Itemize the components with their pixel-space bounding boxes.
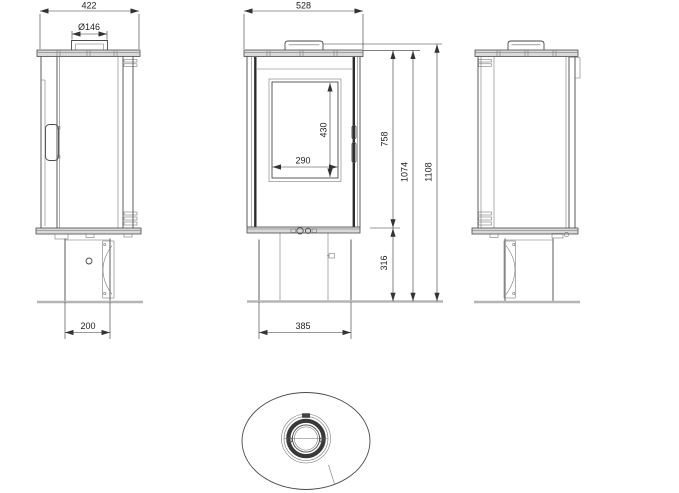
dim-glass-height-label: 430 [319,122,329,137]
dim-flue-diameter-label: Ø146 [78,22,100,32]
pedestal-right [504,239,553,302]
dim-flue-diameter: Ø146 [72,22,107,40]
top-plate-front [244,50,363,57]
pedestal-side [65,239,114,302]
dim-width-label: 528 [296,1,311,11]
dim-base-depth: 200 [65,302,110,339]
ellipse-seam-mark [329,465,335,484]
dim-total-height-label: 1108 [424,162,434,181]
bottom-plate-front [247,227,360,234]
dim-base-width: 385 [259,302,351,339]
dim-depth-label: 422 [81,1,96,11]
flue-tab [302,413,310,418]
top-view [242,393,370,490]
bottom-plate-side [36,228,141,239]
dim-width: 528 [244,1,363,50]
top-plate-side [37,50,140,57]
front-view: 528 430 [244,1,443,340]
vent-slats-bottom [124,212,137,225]
dim-base-depth-label: 200 [80,321,95,331]
dim-glass-height: 430 [319,83,331,177]
vent-slats-bottom [479,212,492,225]
right-side-view [472,41,580,302]
dim-height-to-top-label: 1074 [400,162,410,182]
dim-height-to-top: 1074 [400,51,414,302]
stove-body-front [247,57,360,228]
bottom-plate-right [472,228,578,238]
dim-total-height: 1108 [424,44,438,301]
technical-drawing-canvas: 422 Ø146 [0,0,679,493]
dim-base-height-label: 316 [379,255,389,270]
left-side-view: 422 Ø146 [36,1,143,340]
pedestal-hole [86,258,92,264]
dim-body-height: 758 [380,51,394,228]
stove-body-right [478,57,580,229]
stove-drawing-svg: 422 Ø146 [0,0,679,493]
dim-glass-width: 290 [273,156,338,168]
vent-slats-top [124,60,137,67]
stove-top-outline [242,393,370,490]
flue-collar-right [508,41,544,51]
dim-base-height: 316 [379,228,393,301]
flue-outlet-top [282,413,331,463]
air-control [329,254,335,259]
pedestal-front [259,233,351,302]
dim-glass-width-label: 290 [295,156,310,166]
flue-collar-front [285,41,323,51]
top-plate-right [475,50,578,57]
flue-collar-side [72,41,108,51]
stove-body-side [41,57,137,229]
dim-base-width-label: 385 [295,321,310,331]
dim-body-height-label: 758 [380,131,390,146]
vent-slats-top [479,60,492,67]
